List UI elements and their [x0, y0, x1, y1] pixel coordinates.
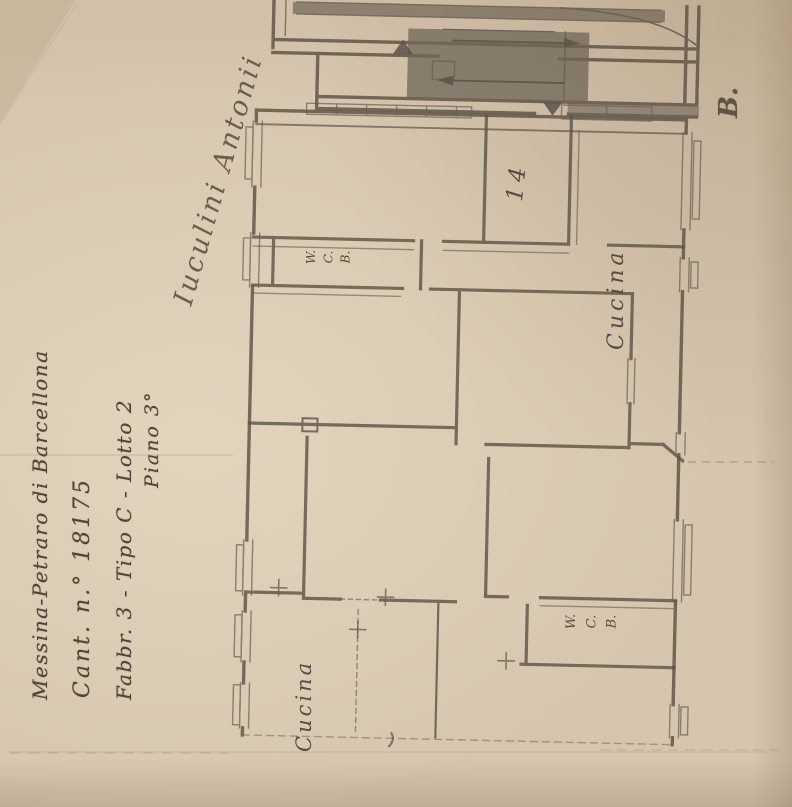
header-line-cantiere: Cant. n.° 18175 [70, 460, 95, 698]
room-label-kitchen-bottom: Cucina [292, 604, 316, 752]
wc-letter: B. [604, 615, 619, 629]
staircase [272, 0, 699, 117]
room-label-wc-top: W. C. B. [304, 250, 351, 264]
sheet-letter: B. [714, 38, 744, 118]
tick-mark [389, 733, 393, 746]
stair-treads [443, 64, 554, 67]
door-marker-down-icon [542, 102, 562, 116]
wc-letter: W. [304, 250, 318, 264]
exterior-wall-inner-line [256, 124, 686, 134]
room-label-kitchen-top: Cucina [604, 162, 629, 350]
wc-letter: C. [321, 251, 335, 264]
scanned-floor-plan-sheet: Messina-Petraro di Barcellona Cant. n.° … [0, 0, 792, 807]
room-label-wc-bottom: W. C. B. [564, 614, 619, 629]
wc-letter: W. [564, 614, 579, 629]
header-line-piano: Piano 3° [141, 380, 163, 488]
header-line-fabbricato: Fabbr. 3 - Tipo C - Lotto 2 [112, 382, 136, 700]
header-line-project: Messina-Petraro di Barcellona [28, 352, 52, 700]
wc-letter: B. [338, 251, 352, 264]
wc-letter: C. [585, 615, 600, 629]
